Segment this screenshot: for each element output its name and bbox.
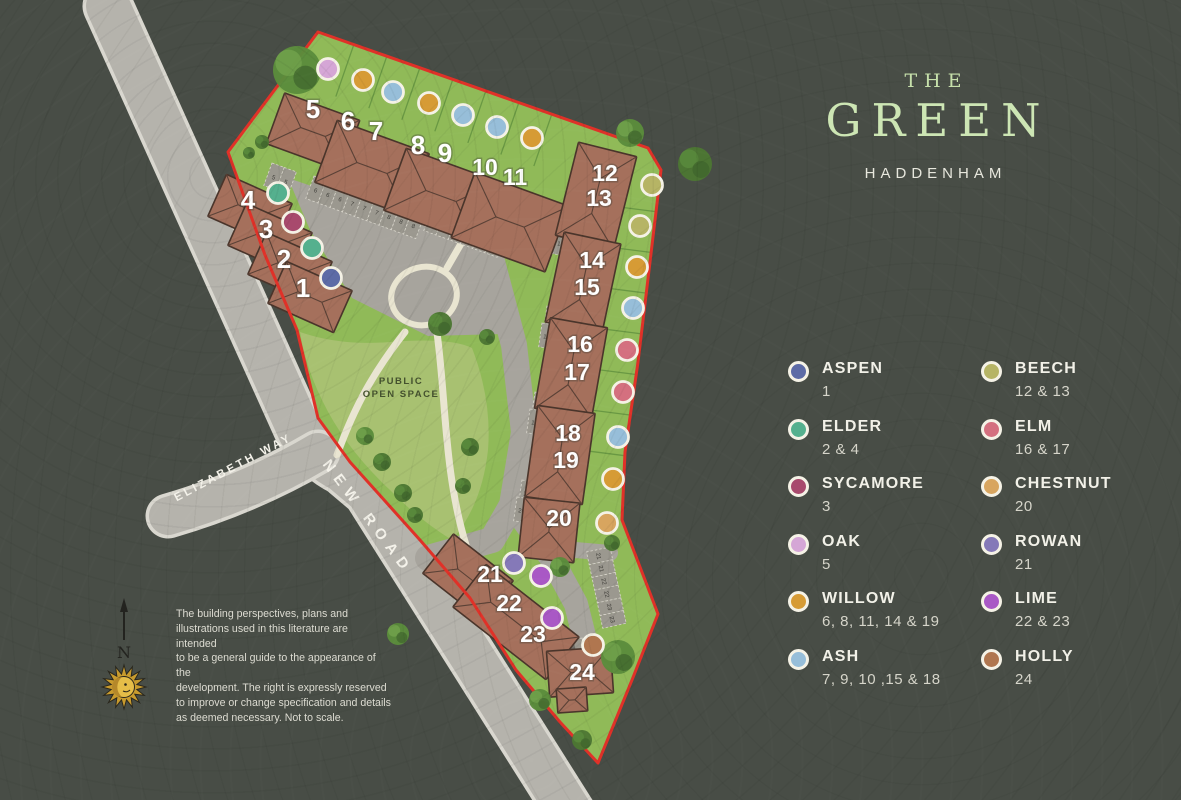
tree-icon bbox=[678, 147, 712, 181]
legend-plot-numbers: 21 bbox=[1015, 556, 1082, 573]
plot-1-number: 1 bbox=[296, 273, 310, 303]
plot-10-number: 10 bbox=[472, 154, 498, 180]
development-title-block: THE GREEN HADDENHAM bbox=[793, 70, 1073, 182]
plot-6-dot bbox=[353, 70, 374, 91]
plot-13-number: 13 bbox=[586, 185, 612, 211]
disclaimer-text: The building perspectives, plans andillu… bbox=[176, 607, 391, 725]
tree-icon bbox=[572, 730, 592, 750]
legend-species-name: ASPEN bbox=[822, 360, 883, 378]
plot-3-dot bbox=[283, 212, 304, 233]
plot-12-number: 12 bbox=[592, 160, 618, 186]
holly-legend-dot-icon bbox=[981, 649, 1002, 670]
plot-5-number: 5 bbox=[306, 94, 320, 124]
legend-species-name: OAK bbox=[822, 533, 861, 551]
legend-species-name: WILLOW bbox=[822, 590, 939, 608]
plot-5-dot bbox=[318, 59, 339, 80]
legend-item-elder: ELDER2 & 4 bbox=[788, 418, 941, 476]
tree-icon bbox=[461, 438, 479, 456]
legend-species-name: CHESTNUT bbox=[1015, 475, 1112, 493]
plot-19-dot bbox=[603, 469, 624, 490]
legend-species-name: ASH bbox=[822, 648, 941, 666]
plot-2-number: 2 bbox=[277, 244, 291, 274]
legend-species-name: SYCAMORE bbox=[822, 475, 924, 493]
plot-17-dot bbox=[613, 382, 634, 403]
plot-21-dot bbox=[504, 553, 525, 574]
legend-plot-numbers: 22 & 23 bbox=[1015, 613, 1070, 630]
legend-plot-numbers: 20 bbox=[1015, 498, 1112, 515]
plot-10-dot bbox=[487, 117, 508, 138]
plot-14-number: 14 bbox=[579, 247, 605, 273]
sun-compass-icon bbox=[102, 665, 146, 709]
open-space-label-line1: PUBLIC bbox=[379, 376, 423, 387]
north-arrow-head bbox=[120, 598, 128, 612]
plot-21-number: 21 bbox=[477, 561, 503, 587]
legend-item-aspen: ASPEN1 bbox=[788, 360, 941, 418]
legend-species-name: HOLLY bbox=[1015, 648, 1074, 666]
plot-4-number: 4 bbox=[241, 185, 256, 215]
disclaimer-line: to improve or change specification and d… bbox=[176, 696, 391, 711]
legend-item-oak: OAK5 bbox=[788, 533, 941, 591]
tree-icon bbox=[550, 557, 570, 577]
ash-legend-dot-icon bbox=[788, 649, 809, 670]
plot-3-number: 3 bbox=[259, 214, 273, 244]
disclaimer-line: as deemed necessary. Not to scale. bbox=[176, 711, 391, 726]
legend-plot-numbers: 5 bbox=[822, 556, 861, 573]
plot-11-dot bbox=[522, 128, 543, 149]
willow-legend-dot-icon bbox=[788, 591, 809, 612]
legend-item-elm: ELM16 & 17 bbox=[981, 418, 1112, 476]
brochure-page: 5566677788899101011111212131314141515161… bbox=[0, 0, 1181, 800]
plot-4-dot bbox=[268, 183, 289, 204]
tree-icon bbox=[407, 507, 423, 523]
plot-15-dot bbox=[623, 298, 644, 319]
tree-icon bbox=[601, 640, 635, 674]
plot-23-number: 23 bbox=[520, 621, 546, 647]
legend-plot-numbers: 12 & 13 bbox=[1015, 383, 1077, 400]
plot-14-dot bbox=[627, 257, 648, 278]
building-17 bbox=[556, 687, 588, 713]
plot-8-dot bbox=[419, 93, 440, 114]
plot-9-number: 9 bbox=[438, 138, 452, 168]
legend-plot-numbers: 2 & 4 bbox=[822, 441, 882, 458]
tree-icon bbox=[394, 484, 412, 502]
open-space-label-line2: OPEN SPACE bbox=[363, 389, 440, 400]
tree-icon bbox=[604, 535, 620, 551]
legend-column-2: BEECH12 & 13ELM16 & 17CHESTNUT20ROWAN21L… bbox=[981, 360, 1112, 706]
disclaimer-line: illustrations used in this literature ar… bbox=[176, 622, 391, 652]
chestnut-legend-dot-icon bbox=[981, 476, 1002, 497]
page-title: GREEN bbox=[793, 98, 1073, 143]
plot-7-number: 7 bbox=[369, 116, 383, 146]
tree-icon bbox=[273, 46, 321, 94]
legend-column-1: ASPEN1ELDER2 & 4SYCAMORE3OAK5WILLOW6, 8,… bbox=[788, 360, 941, 706]
plot-12-dot bbox=[642, 175, 663, 196]
plot-22-number: 22 bbox=[496, 590, 522, 616]
legend-species-name: BEECH bbox=[1015, 360, 1077, 378]
legend-item-ash: ASH7, 9, 10 ,15 & 18 bbox=[788, 648, 941, 706]
tree-icon bbox=[479, 329, 495, 345]
plot-20-number: 20 bbox=[546, 505, 572, 531]
legend-species-name: LIME bbox=[1015, 590, 1070, 608]
plot-24-number: 24 bbox=[569, 659, 595, 685]
plot-19-number: 19 bbox=[553, 447, 579, 473]
legend-species-name: ELM bbox=[1015, 418, 1070, 436]
elm-legend-dot-icon bbox=[981, 419, 1002, 440]
plot-15-number: 15 bbox=[574, 274, 600, 300]
tree-icon bbox=[428, 312, 452, 336]
legend-plot-numbers: 7, 9, 10 ,15 & 18 bbox=[822, 671, 941, 688]
plot-17-number: 17 bbox=[564, 359, 590, 385]
plot-8-number: 8 bbox=[411, 130, 425, 160]
rowan-legend-dot-icon bbox=[981, 534, 1002, 555]
tree-icon bbox=[529, 689, 551, 711]
north-label: N bbox=[117, 643, 131, 662]
plot-24-dot bbox=[583, 635, 604, 656]
legend-plot-numbers: 1 bbox=[822, 383, 883, 400]
tree-icon bbox=[455, 478, 471, 494]
tree-icon bbox=[373, 453, 391, 471]
plot-7-dot bbox=[383, 82, 404, 103]
tree-icon bbox=[356, 427, 374, 445]
aspen-legend-dot-icon bbox=[788, 361, 809, 382]
legend-item-beech: BEECH12 & 13 bbox=[981, 360, 1112, 418]
plot-20-dot bbox=[597, 513, 618, 534]
plot-9-dot bbox=[453, 105, 474, 126]
legend-item-rowan: ROWAN21 bbox=[981, 533, 1112, 591]
plot-2-dot bbox=[302, 238, 323, 259]
elder-legend-dot-icon bbox=[788, 419, 809, 440]
title-the: THE bbox=[793, 70, 1073, 92]
legend-species-name: ELDER bbox=[822, 418, 882, 436]
plot-13-dot bbox=[630, 216, 651, 237]
compass: N bbox=[99, 596, 149, 712]
tree-icon bbox=[616, 119, 644, 147]
legend-species-name: ROWAN bbox=[1015, 533, 1082, 551]
legend-item-willow: WILLOW6, 8, 11, 14 & 19 bbox=[788, 590, 941, 648]
oak-legend-dot-icon bbox=[788, 534, 809, 555]
legend-item-sycamore: SYCAMORE3 bbox=[788, 475, 941, 533]
disclaimer-line: The building perspectives, plans and bbox=[176, 607, 391, 622]
legend-plot-numbers: 3 bbox=[822, 498, 924, 515]
plot-6-number: 6 bbox=[341, 106, 355, 136]
legend-plot-numbers: 16 & 17 bbox=[1015, 441, 1070, 458]
legend-item-lime: LIME22 & 23 bbox=[981, 590, 1112, 648]
plot-18-dot bbox=[608, 427, 629, 448]
disclaimer-line: development. The right is expressly rese… bbox=[176, 681, 391, 696]
tree-icon bbox=[255, 135, 269, 149]
tree-icon bbox=[243, 147, 255, 159]
title-location: HADDENHAM bbox=[793, 165, 1073, 182]
lime-legend-dot-icon bbox=[981, 591, 1002, 612]
beech-legend-dot-icon bbox=[981, 361, 1002, 382]
plot-18-number: 18 bbox=[555, 420, 581, 446]
plot-16-dot bbox=[617, 340, 638, 361]
legend-item-holly: HOLLY24 bbox=[981, 648, 1112, 706]
disclaimer-line: to be a general guide to the appearance … bbox=[176, 651, 391, 681]
plot-11-number: 11 bbox=[503, 164, 528, 190]
plot-16-number: 16 bbox=[567, 331, 593, 357]
sycamore-legend-dot-icon bbox=[788, 476, 809, 497]
legend-item-chestnut: CHESTNUT20 bbox=[981, 475, 1112, 533]
plot-22-dot bbox=[531, 566, 552, 587]
legend-plot-numbers: 24 bbox=[1015, 671, 1074, 688]
legend-plot-numbers: 6, 8, 11, 14 & 19 bbox=[822, 613, 939, 630]
plot-1-dot bbox=[321, 268, 342, 289]
